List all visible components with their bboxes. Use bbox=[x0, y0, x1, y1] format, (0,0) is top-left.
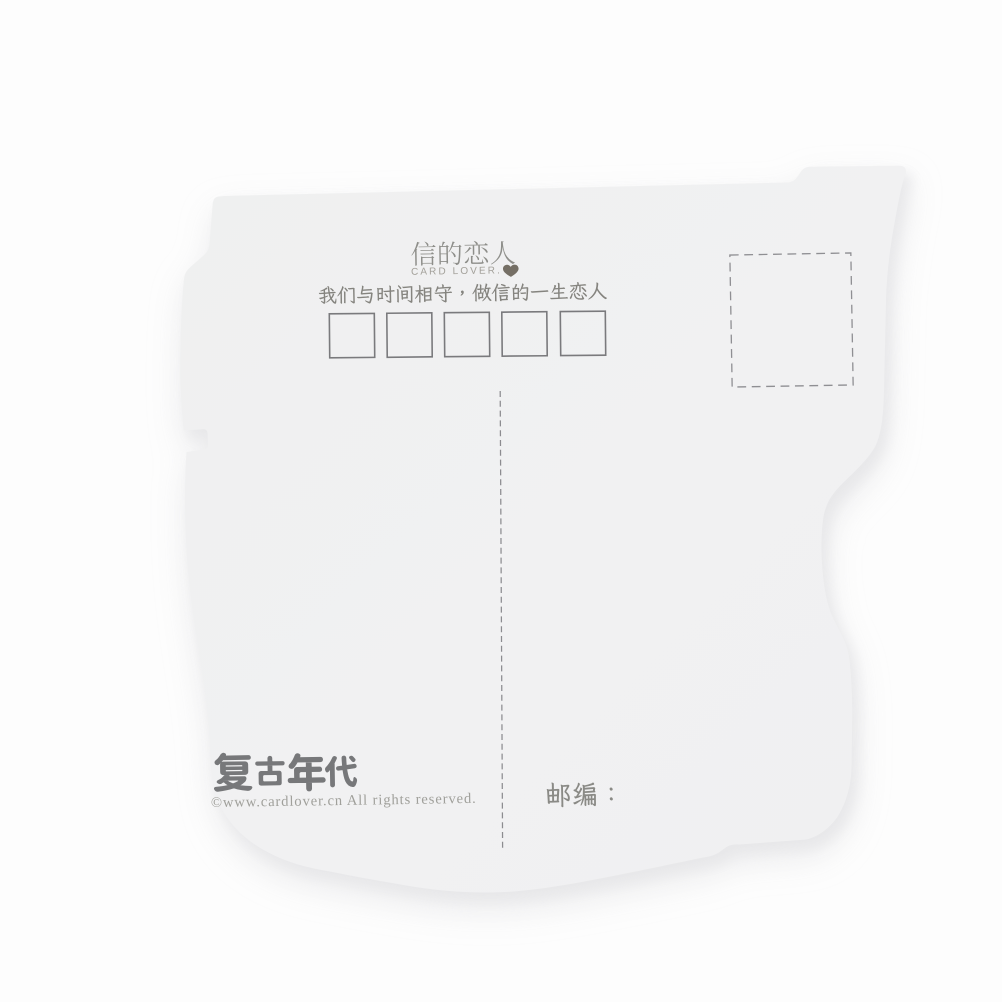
svg-text:CARD LOVER.: CARD LOVER. bbox=[411, 265, 502, 277]
